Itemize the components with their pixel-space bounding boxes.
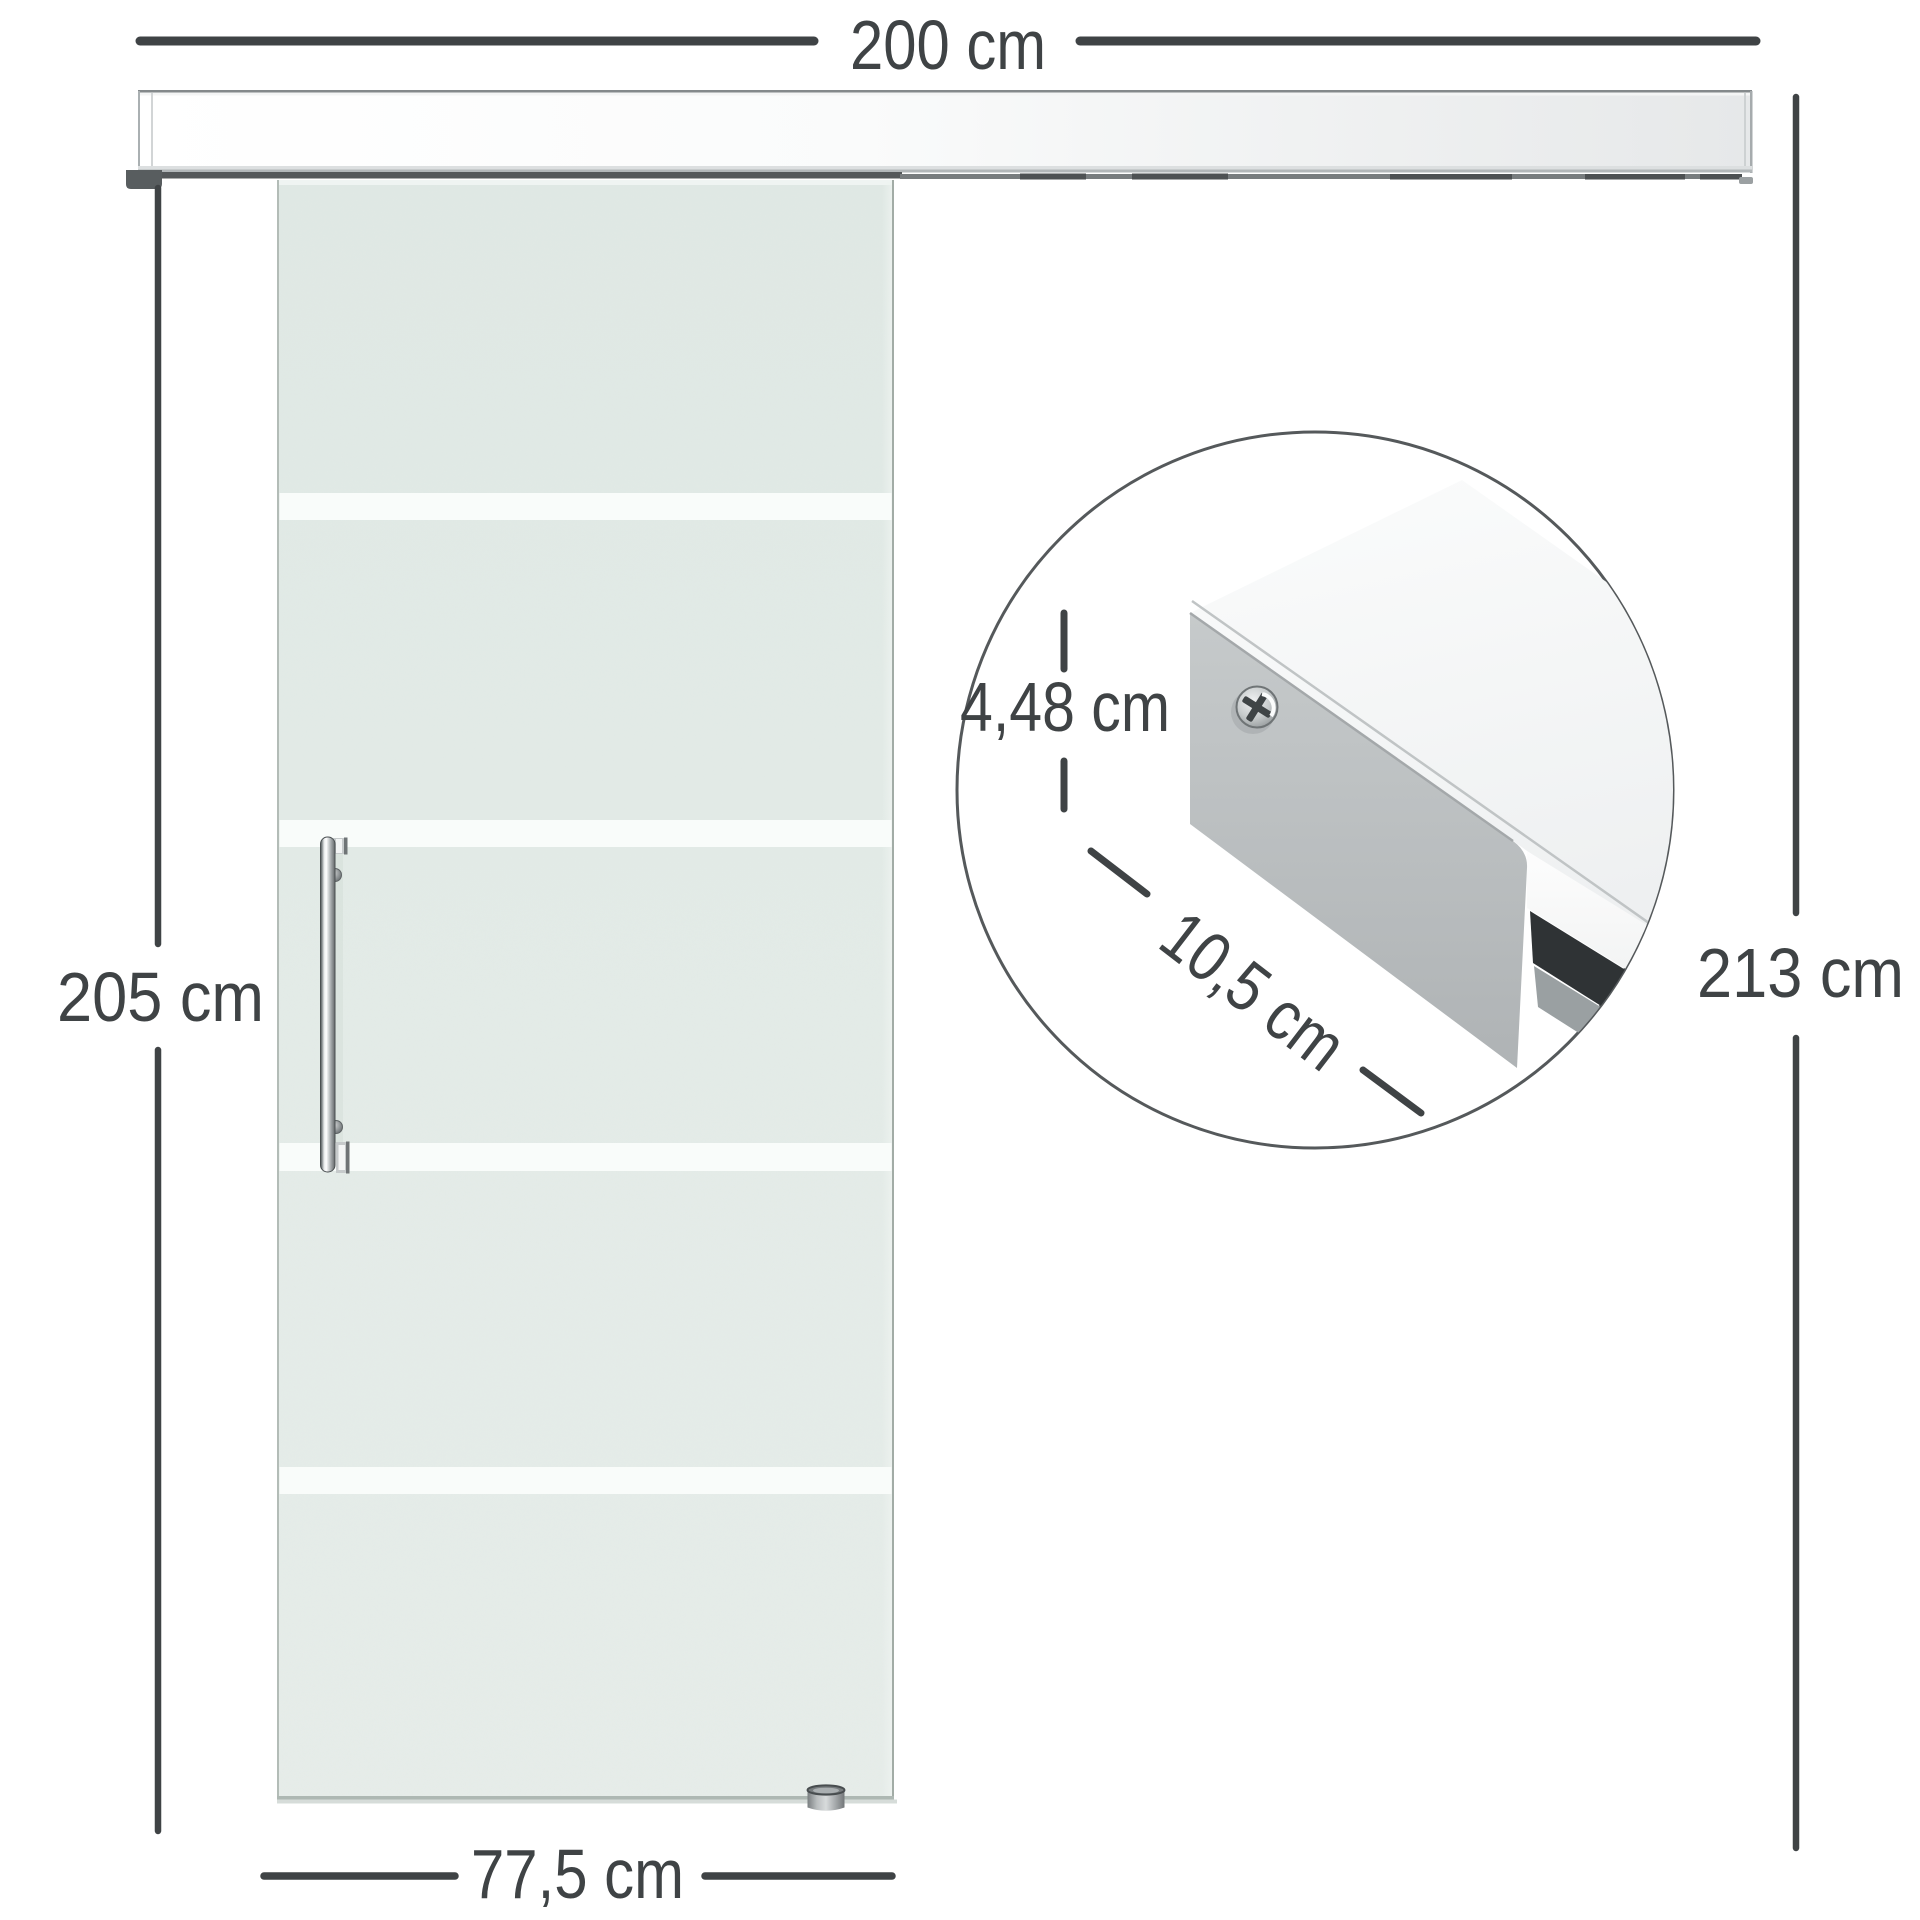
svg-text:4,48 cm: 4,48 cm — [960, 668, 1170, 746]
svg-text:213 cm: 213 cm — [1697, 934, 1904, 1012]
svg-text:205 cm: 205 cm — [57, 958, 264, 1036]
svg-text:77,5 cm: 77,5 cm — [471, 1835, 684, 1913]
svg-text:200 cm: 200 cm — [850, 6, 1046, 84]
